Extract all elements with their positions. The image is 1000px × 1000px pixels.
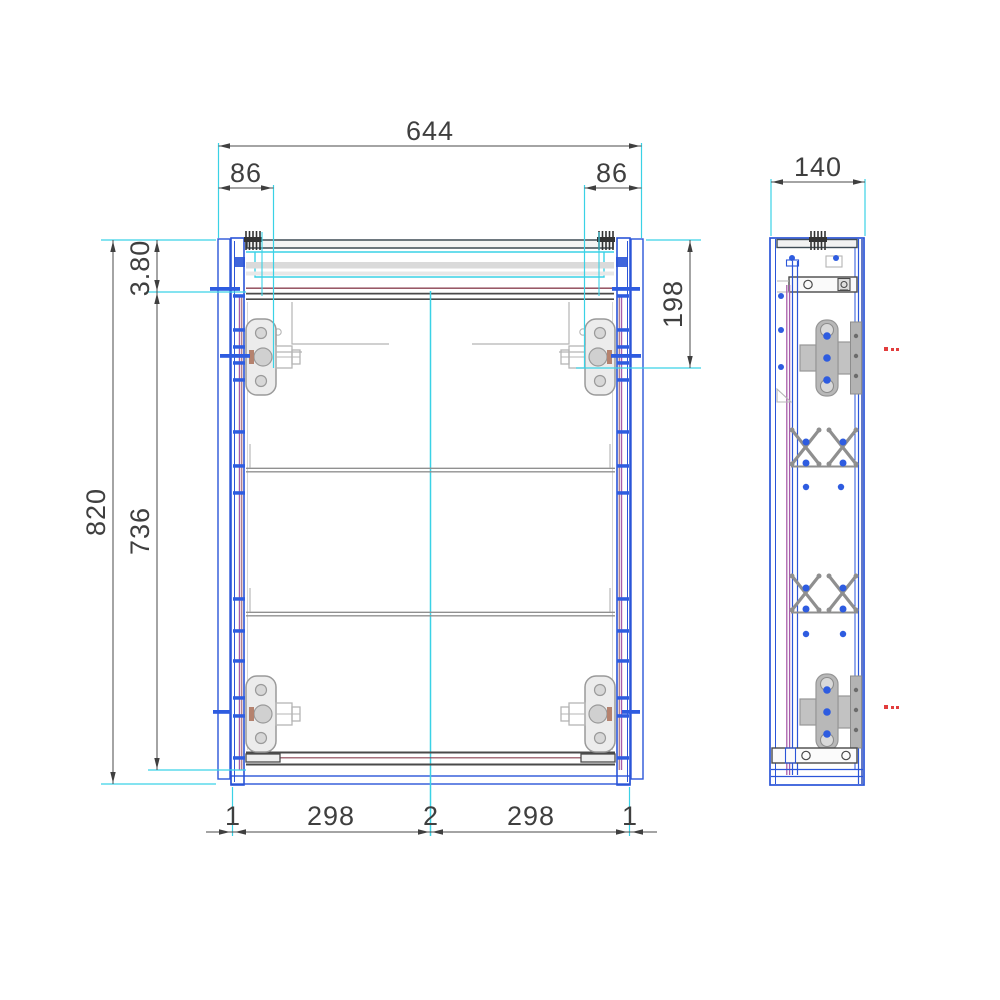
dim-text-overall-height: 820 [81,488,111,536]
dim-text-chain-1: 298 [307,801,355,831]
dim-text-top-hinge-drop: 198 [658,280,688,328]
bottom-rail-right-cap [581,754,615,762]
dim-text-overall-width: 644 [406,116,454,146]
sheet-background [0,0,1000,1000]
rail-axis-tick [210,287,240,291]
top-rail [247,240,613,248]
dim-text-chain-2: 2 [423,801,439,831]
dim-text-chain-4: 1 [622,801,638,831]
dim-text-hinge-offset-right: 86 [596,158,628,188]
cad-drawing: 644 86 86 140 [0,0,1000,1000]
drill-hole-dot [838,484,844,490]
dim-text-depth: 140 [794,152,842,182]
side-bottom-rail [772,748,857,763]
drill-hole-dot [803,484,809,490]
drill-hole-dot [778,293,784,299]
dim-text-chain-0: 1 [225,801,241,831]
hanger-bracket-icon [809,231,827,250]
drill-hole-dot [803,631,809,637]
dim-text-door-height: 736 [125,507,155,555]
dim-text-chain-3: 298 [507,801,555,831]
drawing-sheet: 644 86 86 140 [0,0,1000,1000]
right-top-fitting [616,257,627,267]
light-panel-band [246,262,614,269]
hinge-axis-tick [220,354,250,358]
light-panel-band-2 [246,272,614,276]
hinge-axis-tick [622,710,640,714]
hanger-bracket-icon [244,231,262,250]
hinge-axis-tick [611,354,641,358]
drill-hole-dot [833,255,839,261]
left-top-fitting [234,257,245,267]
cam-lock-icon [838,279,850,291]
hinge-axis-tick [213,710,231,714]
drill-hole-dot [778,364,784,370]
dim-text-hinge-offset-left: 86 [230,158,262,188]
drill-hole-dot [778,327,784,333]
hanger-bracket-icon [597,231,615,250]
rail-axis-tick [612,287,640,291]
drill-hole-dot [840,631,846,637]
dim-text-top-reveal: 3.80 [125,240,155,297]
bottom-rail-left-cap [246,754,280,762]
